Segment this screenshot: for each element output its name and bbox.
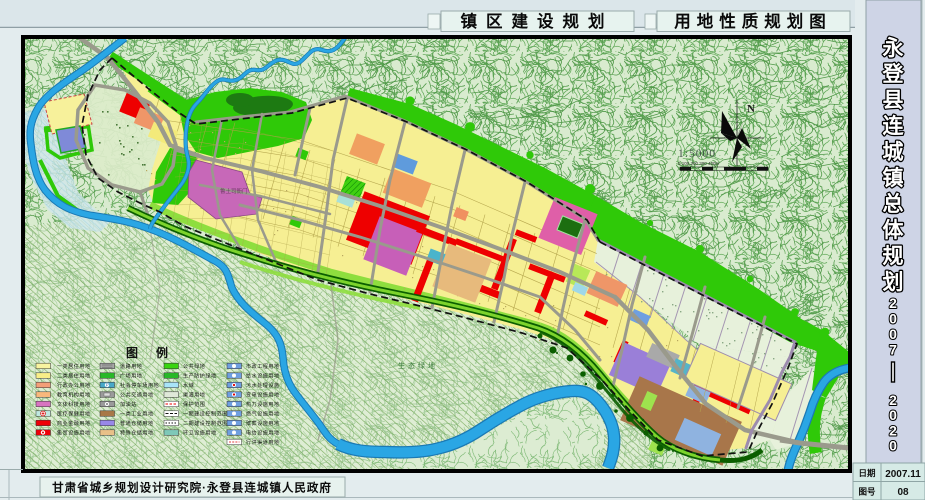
svg-text:特殊仓储用地: 特殊仓储用地 — [120, 429, 154, 436]
svg-text:社会停车场用地: 社会停车场用地 — [120, 382, 159, 389]
svg-text:鲁土司衙门: 鲁土司衙门 — [220, 187, 248, 195]
svg-text:日期: 日期 — [858, 468, 876, 478]
svg-text:污水处理设施: 污水处理设施 — [246, 382, 280, 389]
svg-text:二类居住用地: 二类居住用地 — [57, 372, 91, 379]
svg-text:燃气设施用地: 燃气设施用地 — [246, 410, 280, 417]
svg-text:规: 规 — [883, 245, 904, 268]
svg-text:2: 2 — [889, 422, 897, 438]
svg-text:保护范围: 保护范围 — [183, 401, 205, 408]
svg-text:用地性质规划图: 用地性质规划图 — [674, 11, 832, 31]
svg-text:普通仓储用地: 普通仓储用地 — [120, 420, 154, 427]
svg-text:划: 划 — [883, 271, 904, 294]
svg-text:生态绿地: 生态绿地 — [398, 361, 438, 370]
svg-text:2: 2 — [889, 295, 897, 311]
svg-text:渠灌用地: 渠灌用地 — [183, 391, 205, 398]
svg-text:加油站: 加油站 — [120, 401, 137, 408]
svg-text:2: 2 — [889, 392, 897, 408]
svg-text:教育机构用地: 教育机构用地 — [57, 391, 91, 398]
svg-text:集贸设施用地: 集贸设施用地 — [57, 429, 91, 436]
svg-text:0: 0 — [889, 326, 897, 342]
svg-text:2007.11: 2007.11 — [885, 469, 921, 480]
svg-text:给水设施用地: 给水设施用地 — [246, 372, 280, 379]
svg-text:环卫设施用地: 环卫设施用地 — [183, 429, 217, 436]
svg-text:热力设施用地: 热力设施用地 — [246, 401, 280, 408]
svg-text:7: 7 — [889, 342, 897, 358]
svg-text:市政工程用地: 市政工程用地 — [246, 363, 280, 370]
svg-text:水域: 水域 — [183, 382, 194, 389]
svg-text:镇区建设规划: 镇区建设规划 — [461, 11, 614, 31]
svg-text:总: 总 — [883, 192, 904, 216]
svg-text:商业金融用地: 商业金融用地 — [57, 420, 91, 427]
svg-text:生产防护绿地: 生产防护绿地 — [183, 372, 217, 379]
svg-text:图号: 图号 — [858, 487, 876, 497]
svg-text:永: 永 — [882, 37, 904, 60]
svg-text:甘肃省城乡规划设计研究院·永登县连城镇人民政府: 甘肃省城乡规划设计研究院·永登县连城镇人民政府 — [52, 481, 332, 495]
svg-text:文体科技用地: 文体科技用地 — [57, 401, 91, 408]
svg-text:一类居住用地: 一类居住用地 — [57, 363, 91, 370]
svg-text:P: P — [106, 383, 109, 388]
svg-text:道路用地: 道路用地 — [120, 363, 142, 370]
svg-text:医疗保健用地: 医疗保健用地 — [57, 410, 91, 417]
svg-text:0: 0 — [889, 311, 897, 327]
svg-text:城: 城 — [883, 140, 904, 164]
svg-text:08: 08 — [897, 487, 909, 498]
svg-text:公共绿地: 公共绿地 — [183, 363, 205, 370]
svg-text:公共交通用地: 公共交通用地 — [120, 391, 154, 398]
svg-text:1:5000: 1:5000 — [678, 148, 716, 160]
svg-text:县: 县 — [883, 89, 904, 112]
svg-text:0 100 200 300: 0 100 200 300 400m — [678, 161, 720, 166]
svg-text:一期建设控制范围: 一期建设控制范围 — [183, 410, 228, 417]
svg-text:行洪渠道用地: 行洪渠道用地 — [246, 439, 280, 446]
svg-text:一类工业用地: 一类工业用地 — [120, 410, 154, 417]
svg-text:0: 0 — [889, 407, 897, 423]
svg-text:图例: 图例 — [126, 345, 186, 360]
svg-text:镇: 镇 — [883, 167, 904, 190]
svg-text:体: 体 — [883, 219, 905, 242]
svg-text:电信设施用地: 电信设施用地 — [246, 429, 280, 436]
svg-text:殡葬设施用地: 殡葬设施用地 — [246, 420, 280, 427]
svg-text:连: 连 — [883, 114, 905, 138]
svg-text:登: 登 — [882, 62, 905, 86]
svg-text:广场用地: 广场用地 — [120, 372, 142, 379]
svg-text:N: N — [747, 103, 755, 115]
svg-text:行政办公用地: 行政办公用地 — [57, 382, 91, 389]
svg-text:二期建设控制范围: 二期建设控制范围 — [183, 420, 228, 427]
svg-text:变电设施用地: 变电设施用地 — [246, 391, 280, 398]
svg-text:0: 0 — [889, 438, 897, 454]
